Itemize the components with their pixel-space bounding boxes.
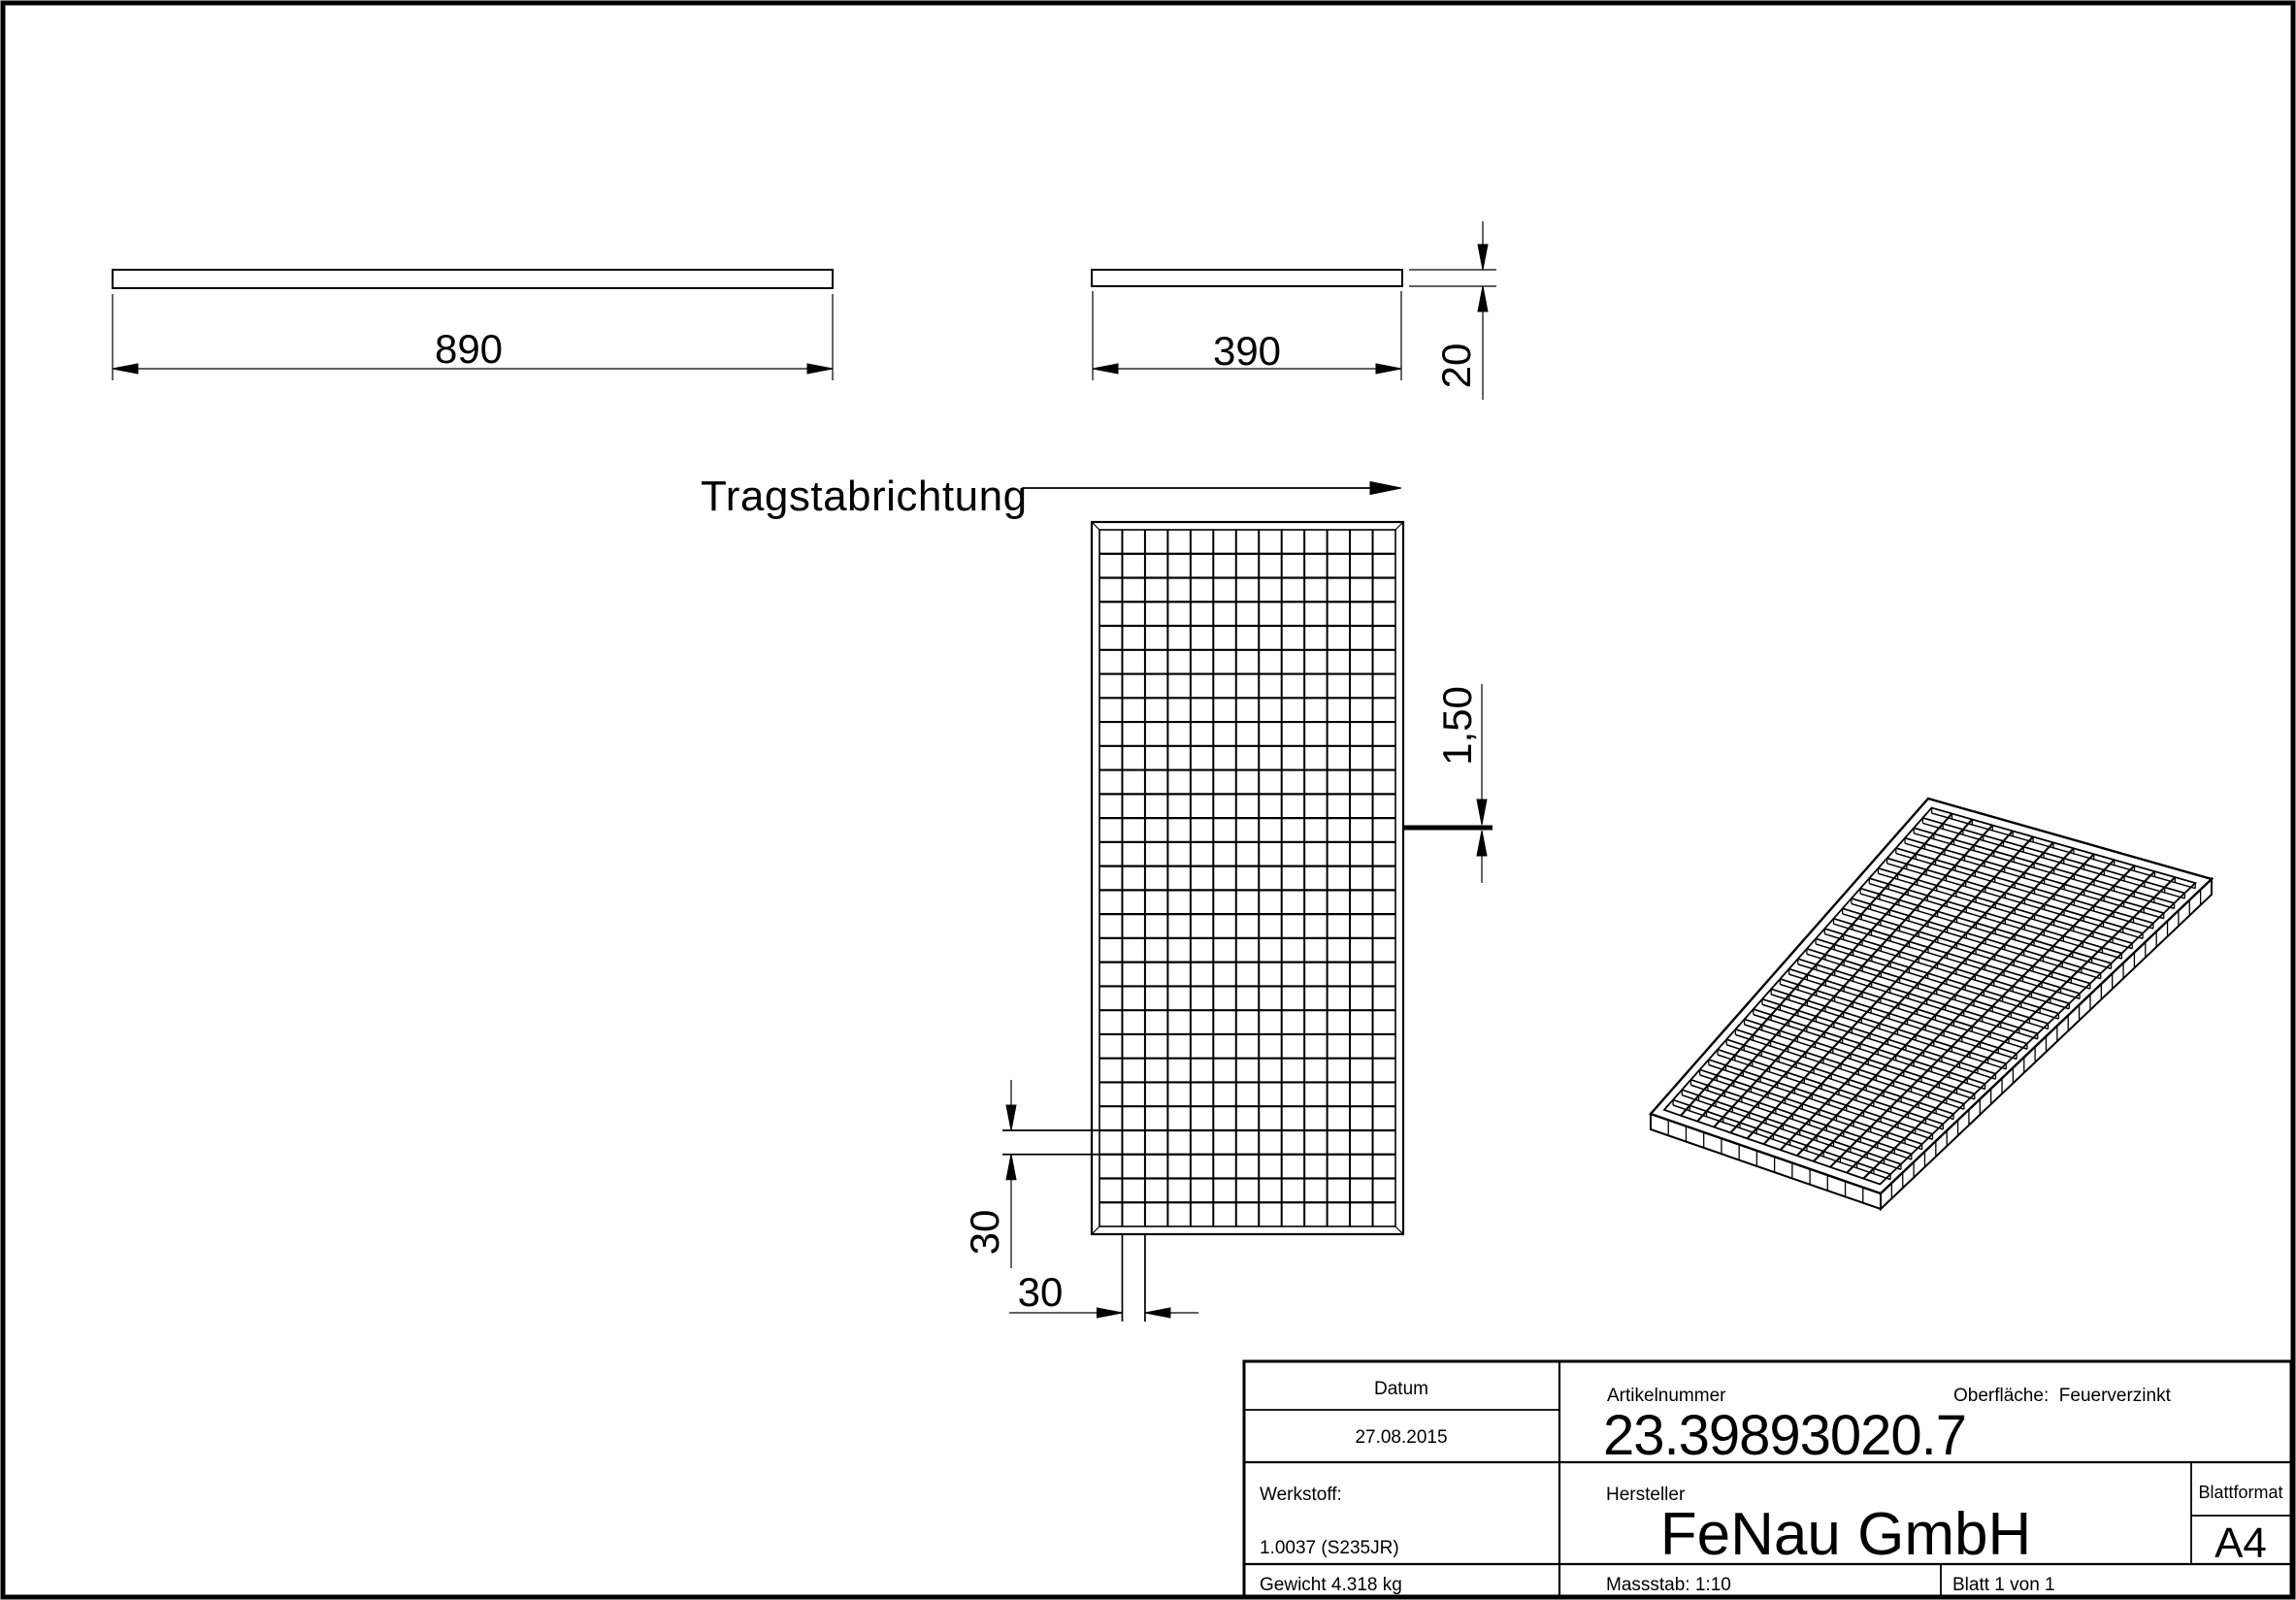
titleblock-blattformat-label: Blattformat <box>2198 1484 2282 1501</box>
titleblock-artikelnummer-label: Artikelnummer <box>1607 1387 1725 1405</box>
dim-150-label: 1,50 <box>1437 686 1478 766</box>
titleblock-artikelnummer-value: 23.39893020.7 <box>1603 1408 1966 1464</box>
titleblock-blattformat-value: A4 <box>2214 1522 2267 1565</box>
dim-30-vertical-label: 30 <box>965 1210 1005 1256</box>
titleblock-datum-value: 27.08.2015 <box>1355 1428 1447 1447</box>
titleblock-werkstoff-label: Werkstoff: <box>1260 1486 1342 1504</box>
titleblock-oberflaeche-label: Oberfläche: Feuerverzinkt <box>1953 1387 2171 1405</box>
titleblock-blatt-value: Blatt 1 von 1 <box>1952 1576 2055 1594</box>
titleblock-werkstoff-value: 1.0037 (S235JR) <box>1260 1539 1399 1557</box>
dim-30-horizontal-label: 30 <box>1018 1272 1064 1313</box>
drawing-linework <box>0 0 2296 1600</box>
drawing-sheet: 890 390 20 Tragstabrichtung 1,50 30 30 D… <box>0 0 2296 1600</box>
dim-390-label: 390 <box>1213 331 1281 372</box>
titleblock-massstab-value: Massstab: 1:10 <box>1606 1576 1731 1594</box>
titleblock-gewicht-value: Gewicht 4.318 kg <box>1260 1576 1402 1594</box>
titleblock-hersteller-value: FeNau GmbH <box>1660 1505 2031 1565</box>
dim-890-label: 890 <box>435 329 503 370</box>
dim-20-label: 20 <box>1436 343 1477 389</box>
tragstabrichtung-label: Tragstabrichtung <box>701 475 1028 518</box>
titleblock-datum-label: Datum <box>1374 1380 1428 1398</box>
